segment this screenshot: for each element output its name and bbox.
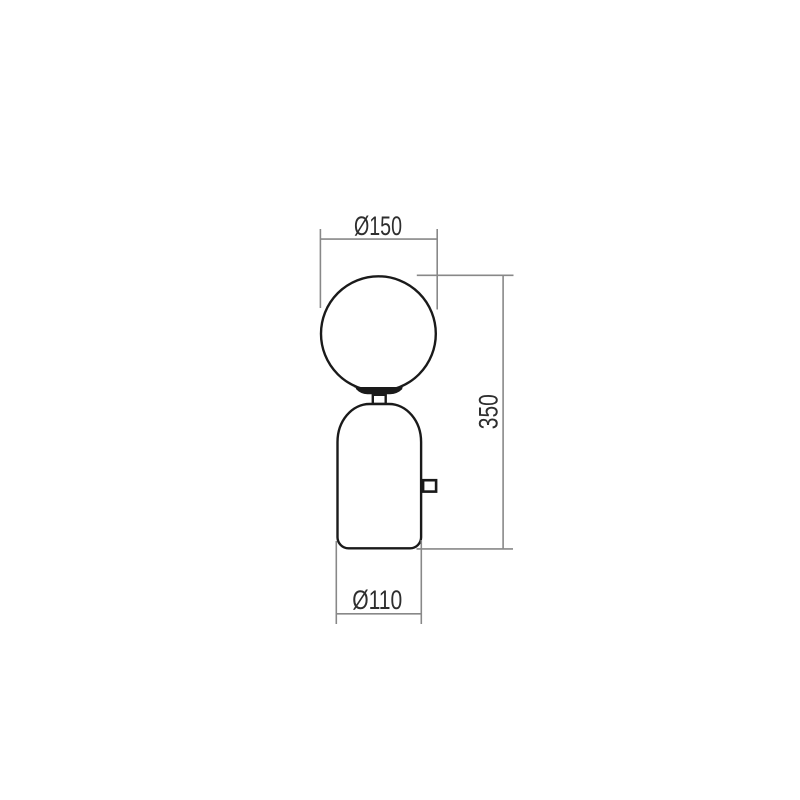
svg-text:350: 350 [473,394,503,429]
svg-text:Ø150: Ø150 [354,211,402,241]
svg-text:Ø110: Ø110 [352,585,402,615]
